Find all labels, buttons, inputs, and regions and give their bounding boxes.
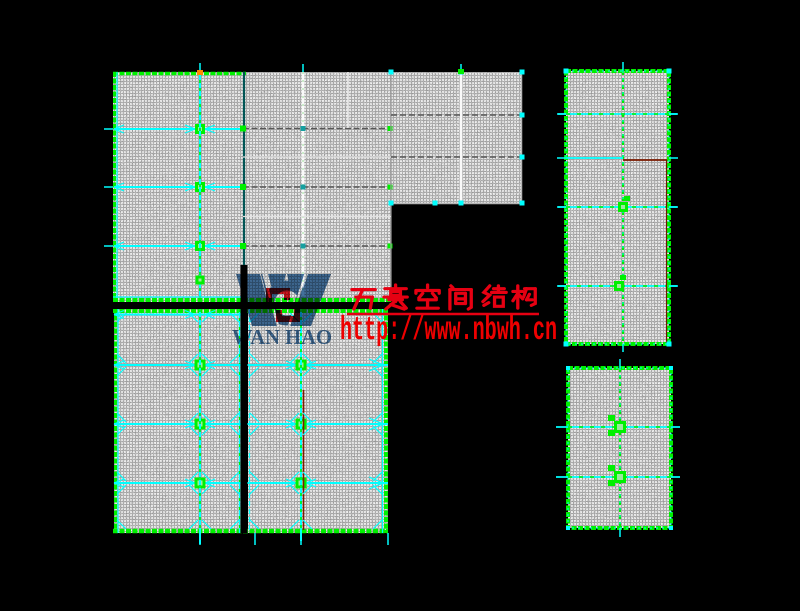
svg-text:http://www.nbwh.cn: http://www.nbwh.cn	[340, 312, 557, 349]
svg-text:WAN HAO: WAN HAO	[232, 325, 332, 349]
